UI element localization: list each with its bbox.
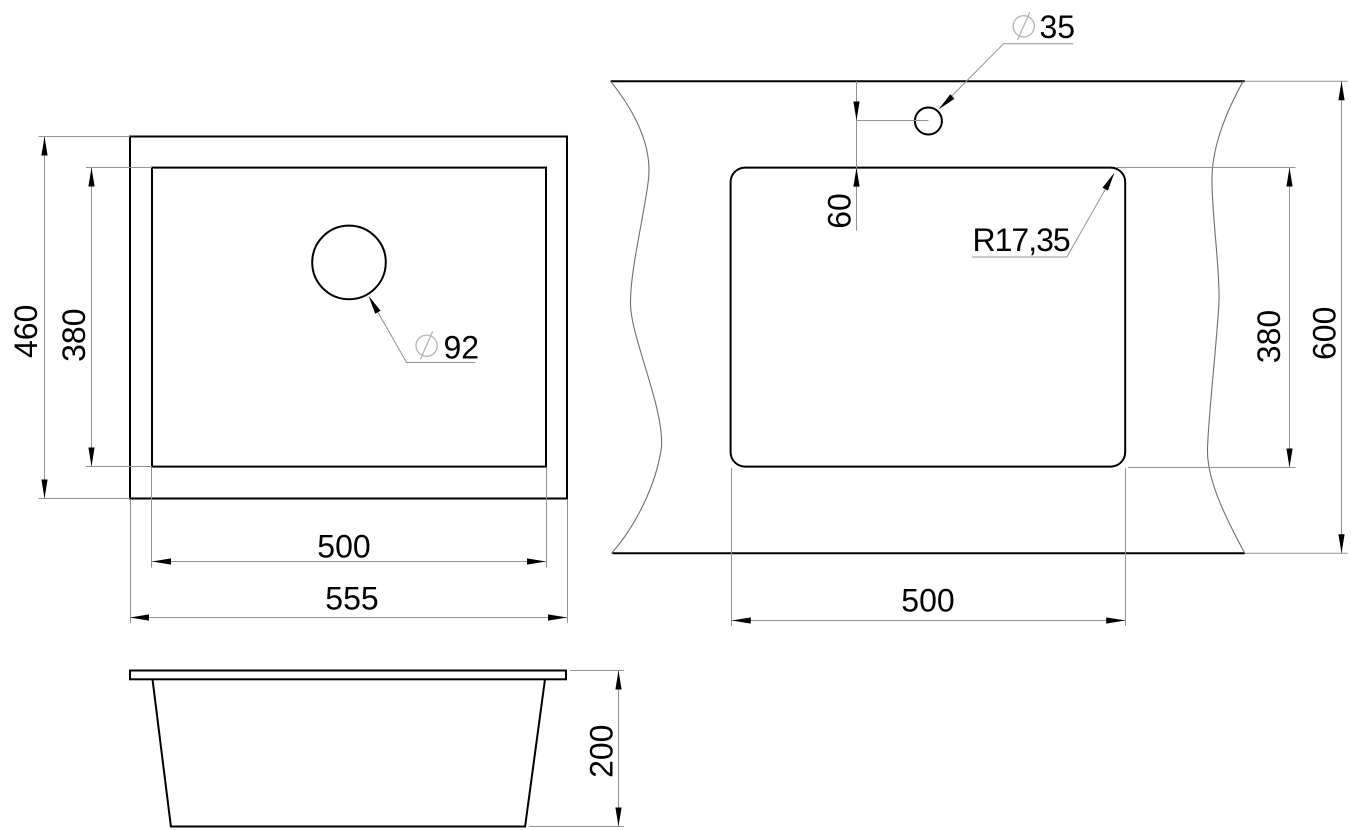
svg-text:35: 35 xyxy=(1040,9,1076,45)
svg-text:60: 60 xyxy=(822,193,858,229)
svg-text:380: 380 xyxy=(1251,310,1287,363)
svg-text:92: 92 xyxy=(444,329,480,365)
svg-text:460: 460 xyxy=(8,305,44,358)
svg-text:500: 500 xyxy=(317,529,370,565)
svg-text:R17,35: R17,35 xyxy=(973,222,1070,258)
svg-text:380: 380 xyxy=(56,309,92,362)
svg-text:500: 500 xyxy=(901,583,954,619)
svg-text:200: 200 xyxy=(583,725,619,778)
svg-text:555: 555 xyxy=(325,581,378,617)
svg-text:600: 600 xyxy=(1307,307,1343,360)
